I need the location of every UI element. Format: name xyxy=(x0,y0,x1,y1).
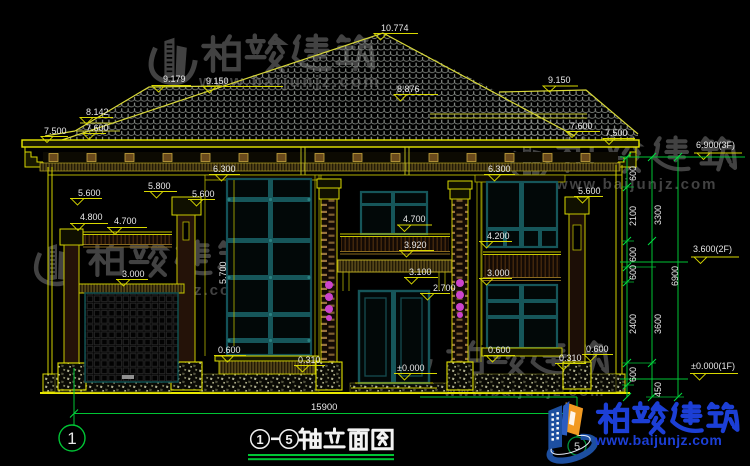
svg-text:9.150: 9.150 xyxy=(206,76,229,86)
svg-text:4.200: 4.200 xyxy=(487,231,510,241)
svg-text:5.600: 5.600 xyxy=(578,186,601,196)
svg-text:5.800: 5.800 xyxy=(148,181,171,191)
svg-text:4.800: 4.800 xyxy=(80,212,103,222)
svg-text:1: 1 xyxy=(67,429,76,448)
svg-text:3.600(2F): 3.600(2F) xyxy=(693,244,732,254)
svg-text:9.150: 9.150 xyxy=(548,75,571,85)
svg-text:3.000: 3.000 xyxy=(122,269,145,279)
svg-text:5: 5 xyxy=(285,432,292,447)
svg-text:8.142: 8.142 xyxy=(86,107,109,117)
svg-text:6.300: 6.300 xyxy=(488,164,511,174)
svg-text:0.600: 0.600 xyxy=(488,345,511,355)
svg-text:7.600: 7.600 xyxy=(570,121,593,131)
svg-text:600: 600 xyxy=(628,247,638,262)
svg-text:600: 600 xyxy=(628,367,638,382)
svg-text:10.774: 10.774 xyxy=(381,23,409,33)
svg-text:8.876: 8.876 xyxy=(397,84,420,94)
svg-text:7.500: 7.500 xyxy=(44,126,67,136)
svg-text:0.310: 0.310 xyxy=(298,355,321,365)
svg-text:9.179: 9.179 xyxy=(163,74,186,84)
svg-text:2400: 2400 xyxy=(628,314,638,334)
svg-text:7.600: 7.600 xyxy=(86,123,109,133)
svg-text:2100: 2100 xyxy=(628,206,638,226)
svg-text:0.600: 0.600 xyxy=(586,344,609,354)
svg-text:6.300: 6.300 xyxy=(213,164,236,174)
svg-text:4.700: 4.700 xyxy=(403,214,426,224)
svg-text:5.600: 5.600 xyxy=(192,189,215,199)
svg-text:6900: 6900 xyxy=(670,266,680,286)
svg-text:0.310: 0.310 xyxy=(559,353,582,363)
svg-text:4.700: 4.700 xyxy=(114,216,137,226)
svg-text:3600: 3600 xyxy=(653,314,663,334)
svg-text:3300: 3300 xyxy=(653,205,663,225)
svg-text:600: 600 xyxy=(628,166,638,181)
svg-text:5.700: 5.700 xyxy=(218,261,228,284)
svg-text:15900: 15900 xyxy=(311,402,337,413)
svg-text:±0.000: ±0.000 xyxy=(397,363,424,373)
svg-text:5.600: 5.600 xyxy=(78,188,101,198)
svg-text:450: 450 xyxy=(653,382,663,397)
svg-text:3.000: 3.000 xyxy=(487,268,510,278)
svg-text:3.920: 3.920 xyxy=(404,240,427,250)
svg-text:0.600: 0.600 xyxy=(218,345,241,355)
svg-text:7.500: 7.500 xyxy=(605,128,628,138)
svg-text:1: 1 xyxy=(256,432,263,447)
svg-text:2.700: 2.700 xyxy=(433,283,456,293)
svg-text:±0.000(1F): ±0.000(1F) xyxy=(691,361,735,371)
svg-text:600: 600 xyxy=(628,265,638,280)
svg-text:6.900(3F): 6.900(3F) xyxy=(696,140,735,150)
svg-text:www.baijunjz.com: www.baijunjz.com xyxy=(594,432,722,448)
svg-text:3.100: 3.100 xyxy=(409,267,432,277)
